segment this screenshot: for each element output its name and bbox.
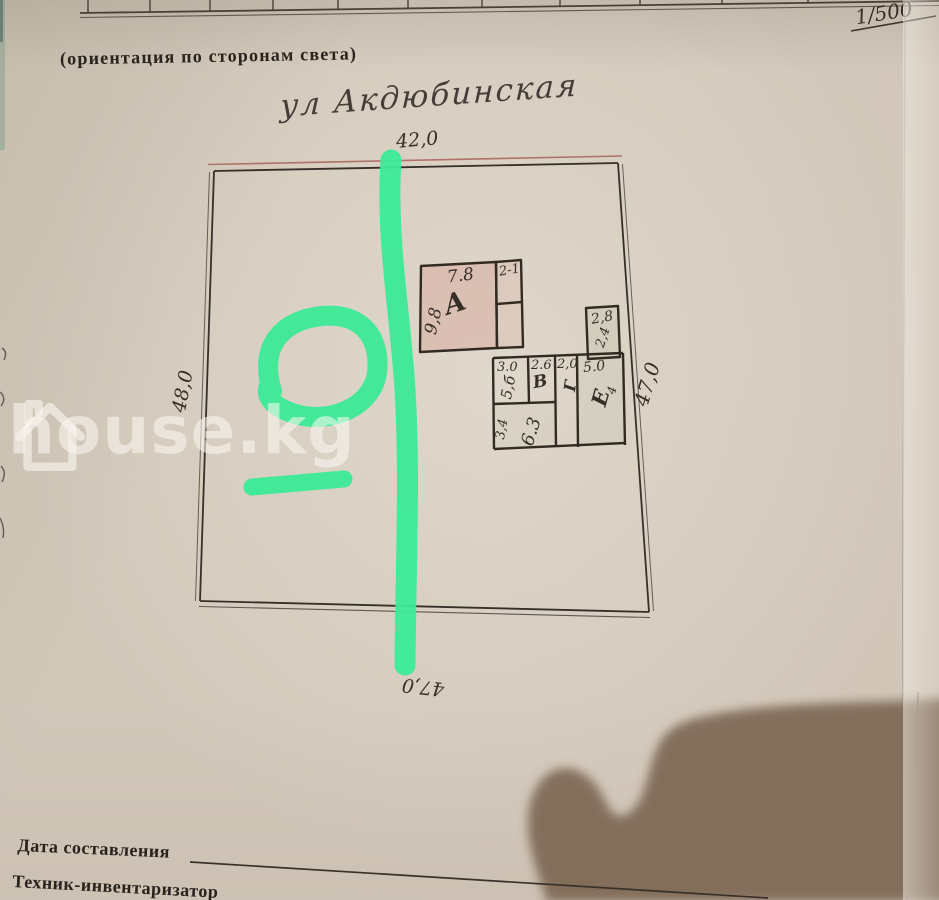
overlay-layer [0, 0, 939, 900]
document-photo: 1/500 (ориентация по сторонам света) ул … [0, 0, 939, 900]
hand-shadow [528, 698, 939, 900]
